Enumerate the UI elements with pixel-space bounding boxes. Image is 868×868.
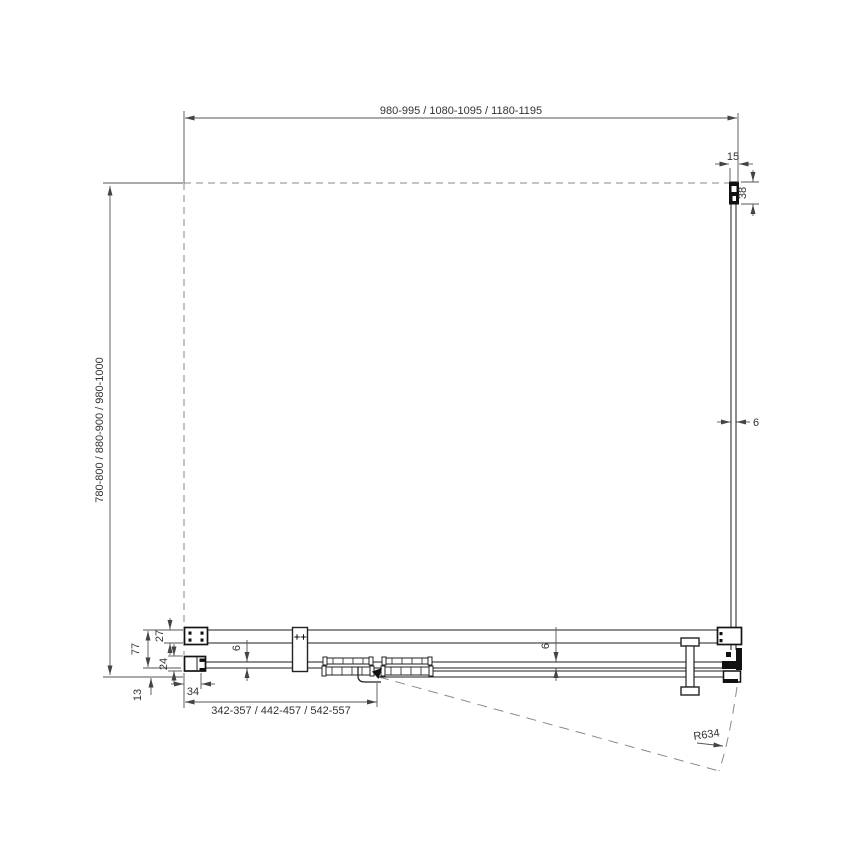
rail-wall-bracket-left [185, 628, 208, 645]
dim-door-glass-6: 6 [231, 645, 243, 651]
dim-side-glass-6: 6 [753, 417, 759, 429]
corner-fitting-right [722, 648, 742, 683]
door-seal-strips-left [322, 657, 374, 676]
dim-rail-depth-27: 27 [154, 630, 166, 642]
enclosure-outline-dashed [184, 183, 730, 655]
dim-top-width: 980-995 / 1080-1095 / 1180-1195 [380, 105, 542, 117]
shower-enclosure-plan-drawing: 980-995 / 1080-1095 / 1180-1195 780-800 … [0, 0, 868, 868]
dimension-labels: 980-995 / 1080-1095 / 1180-1195 780-800 … [94, 105, 759, 743]
dim-fixed-glass-6: 6 [540, 643, 552, 649]
dim-offset-13: 13 [132, 689, 144, 701]
door-seal-strips-right [381, 657, 433, 676]
technical-drawing-canvas: 980-995 / 1080-1095 / 1180-1195 780-800 … [0, 0, 868, 868]
door-carriage-handle [293, 628, 308, 672]
dim-total-depth-77: 77 [130, 643, 142, 655]
dim-swing-radius: R634 [693, 727, 721, 743]
dim-left-height: 780-800 / 880-900 / 980-1000 [94, 357, 106, 503]
dim-bottom-profile-24: 24 [158, 658, 170, 670]
dimension-lines [110, 118, 753, 746]
side-panel-support-post [681, 638, 699, 695]
dim-door-opening-width: 342-357 / 442-457 / 542-557 [211, 705, 350, 717]
sliding-rail [184, 630, 742, 643]
glass-panels [203, 204, 736, 677]
rail-wall-bracket-right [718, 628, 742, 645]
dim-profile-width-15: 15 [727, 151, 739, 163]
extension-lines [103, 111, 759, 708]
dim-wall-profile-34: 34 [187, 686, 199, 698]
bottom-wall-profile-left [185, 657, 206, 672]
dim-profile-depth-38: 38 [737, 187, 749, 199]
